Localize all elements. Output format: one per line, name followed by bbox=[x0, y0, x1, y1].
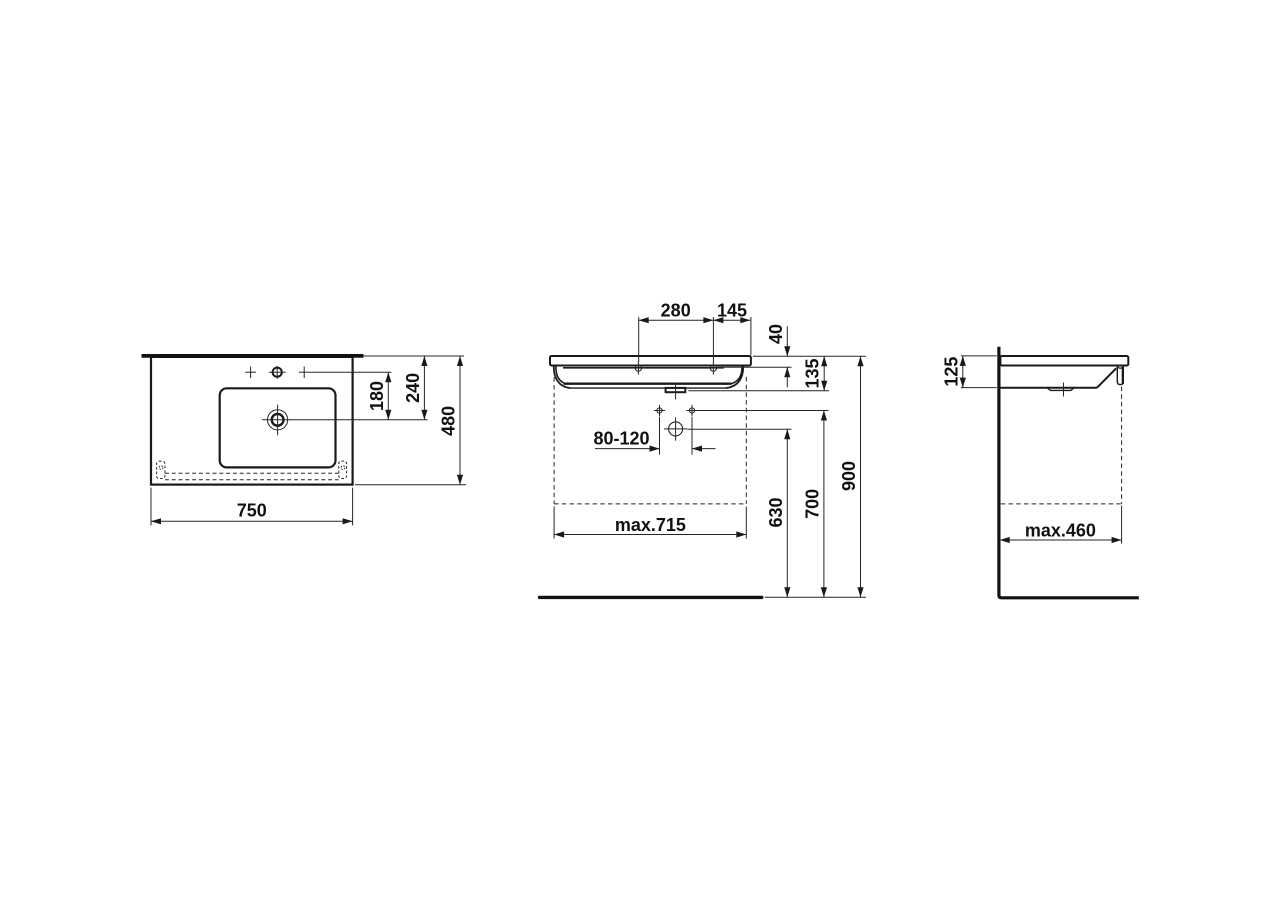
svg-text:630: 630 bbox=[766, 497, 786, 527]
svg-text:max.715: max.715 bbox=[615, 515, 686, 535]
svg-text:700: 700 bbox=[802, 489, 822, 519]
svg-text:145: 145 bbox=[717, 301, 747, 321]
svg-text:180: 180 bbox=[367, 381, 387, 411]
svg-text:135: 135 bbox=[803, 358, 823, 388]
svg-text:80-120: 80-120 bbox=[593, 429, 649, 449]
svg-text:900: 900 bbox=[839, 461, 859, 491]
svg-text:40: 40 bbox=[766, 324, 786, 344]
svg-text:280: 280 bbox=[661, 301, 691, 321]
svg-text:750: 750 bbox=[237, 501, 267, 521]
svg-text:240: 240 bbox=[403, 373, 423, 403]
svg-text:max.460: max.460 bbox=[1025, 520, 1096, 540]
svg-text:125: 125 bbox=[941, 357, 961, 387]
svg-text:480: 480 bbox=[439, 406, 459, 436]
